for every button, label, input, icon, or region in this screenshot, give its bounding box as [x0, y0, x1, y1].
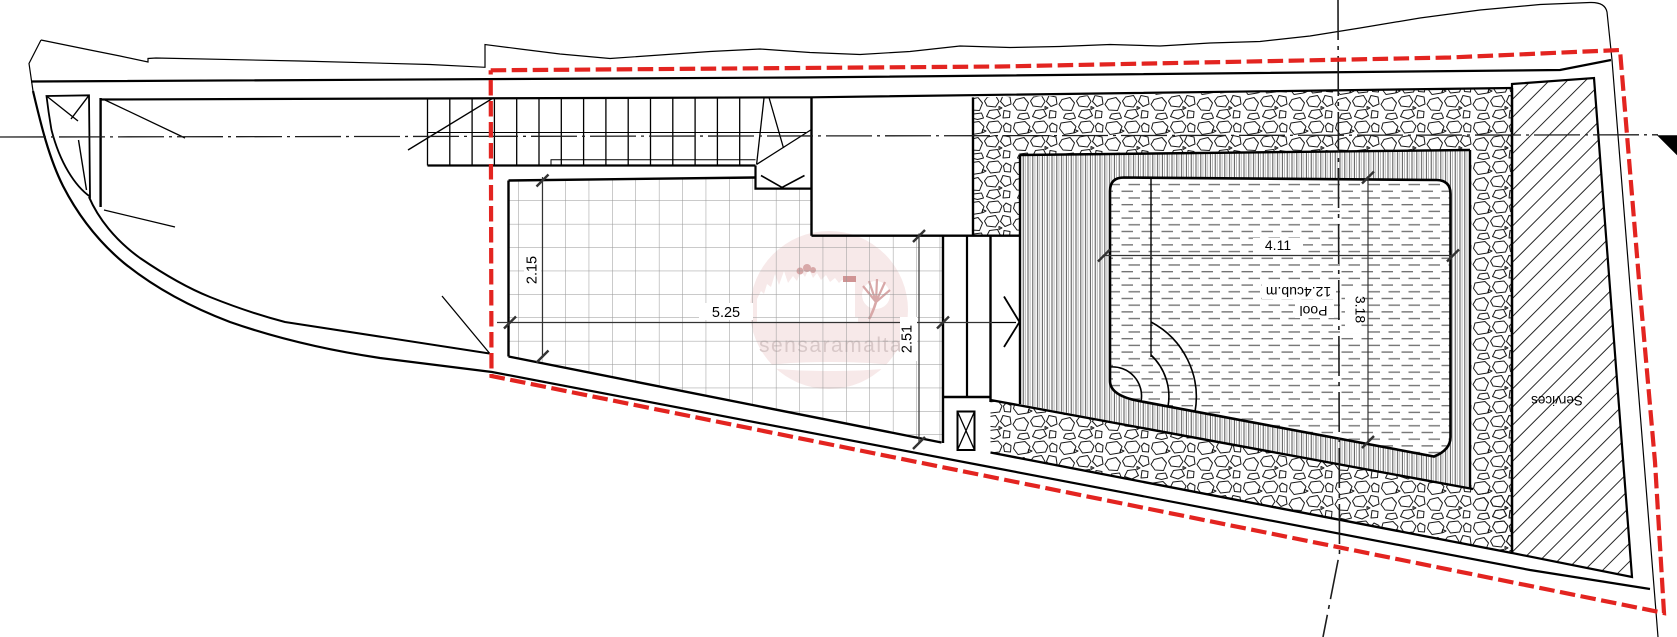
svg-text:3.18: 3.18	[1353, 296, 1369, 323]
svg-text:Pool: Pool	[1299, 303, 1327, 319]
svg-text:12.4cub.m: 12.4cub.m	[1266, 284, 1331, 300]
svg-text:2.15: 2.15	[525, 256, 541, 284]
svg-text:5.25: 5.25	[712, 305, 740, 321]
svg-text:4.11: 4.11	[1265, 237, 1291, 253]
svg-text:2.51: 2.51	[900, 325, 916, 353]
svg-text:Services: Services	[1531, 393, 1583, 408]
